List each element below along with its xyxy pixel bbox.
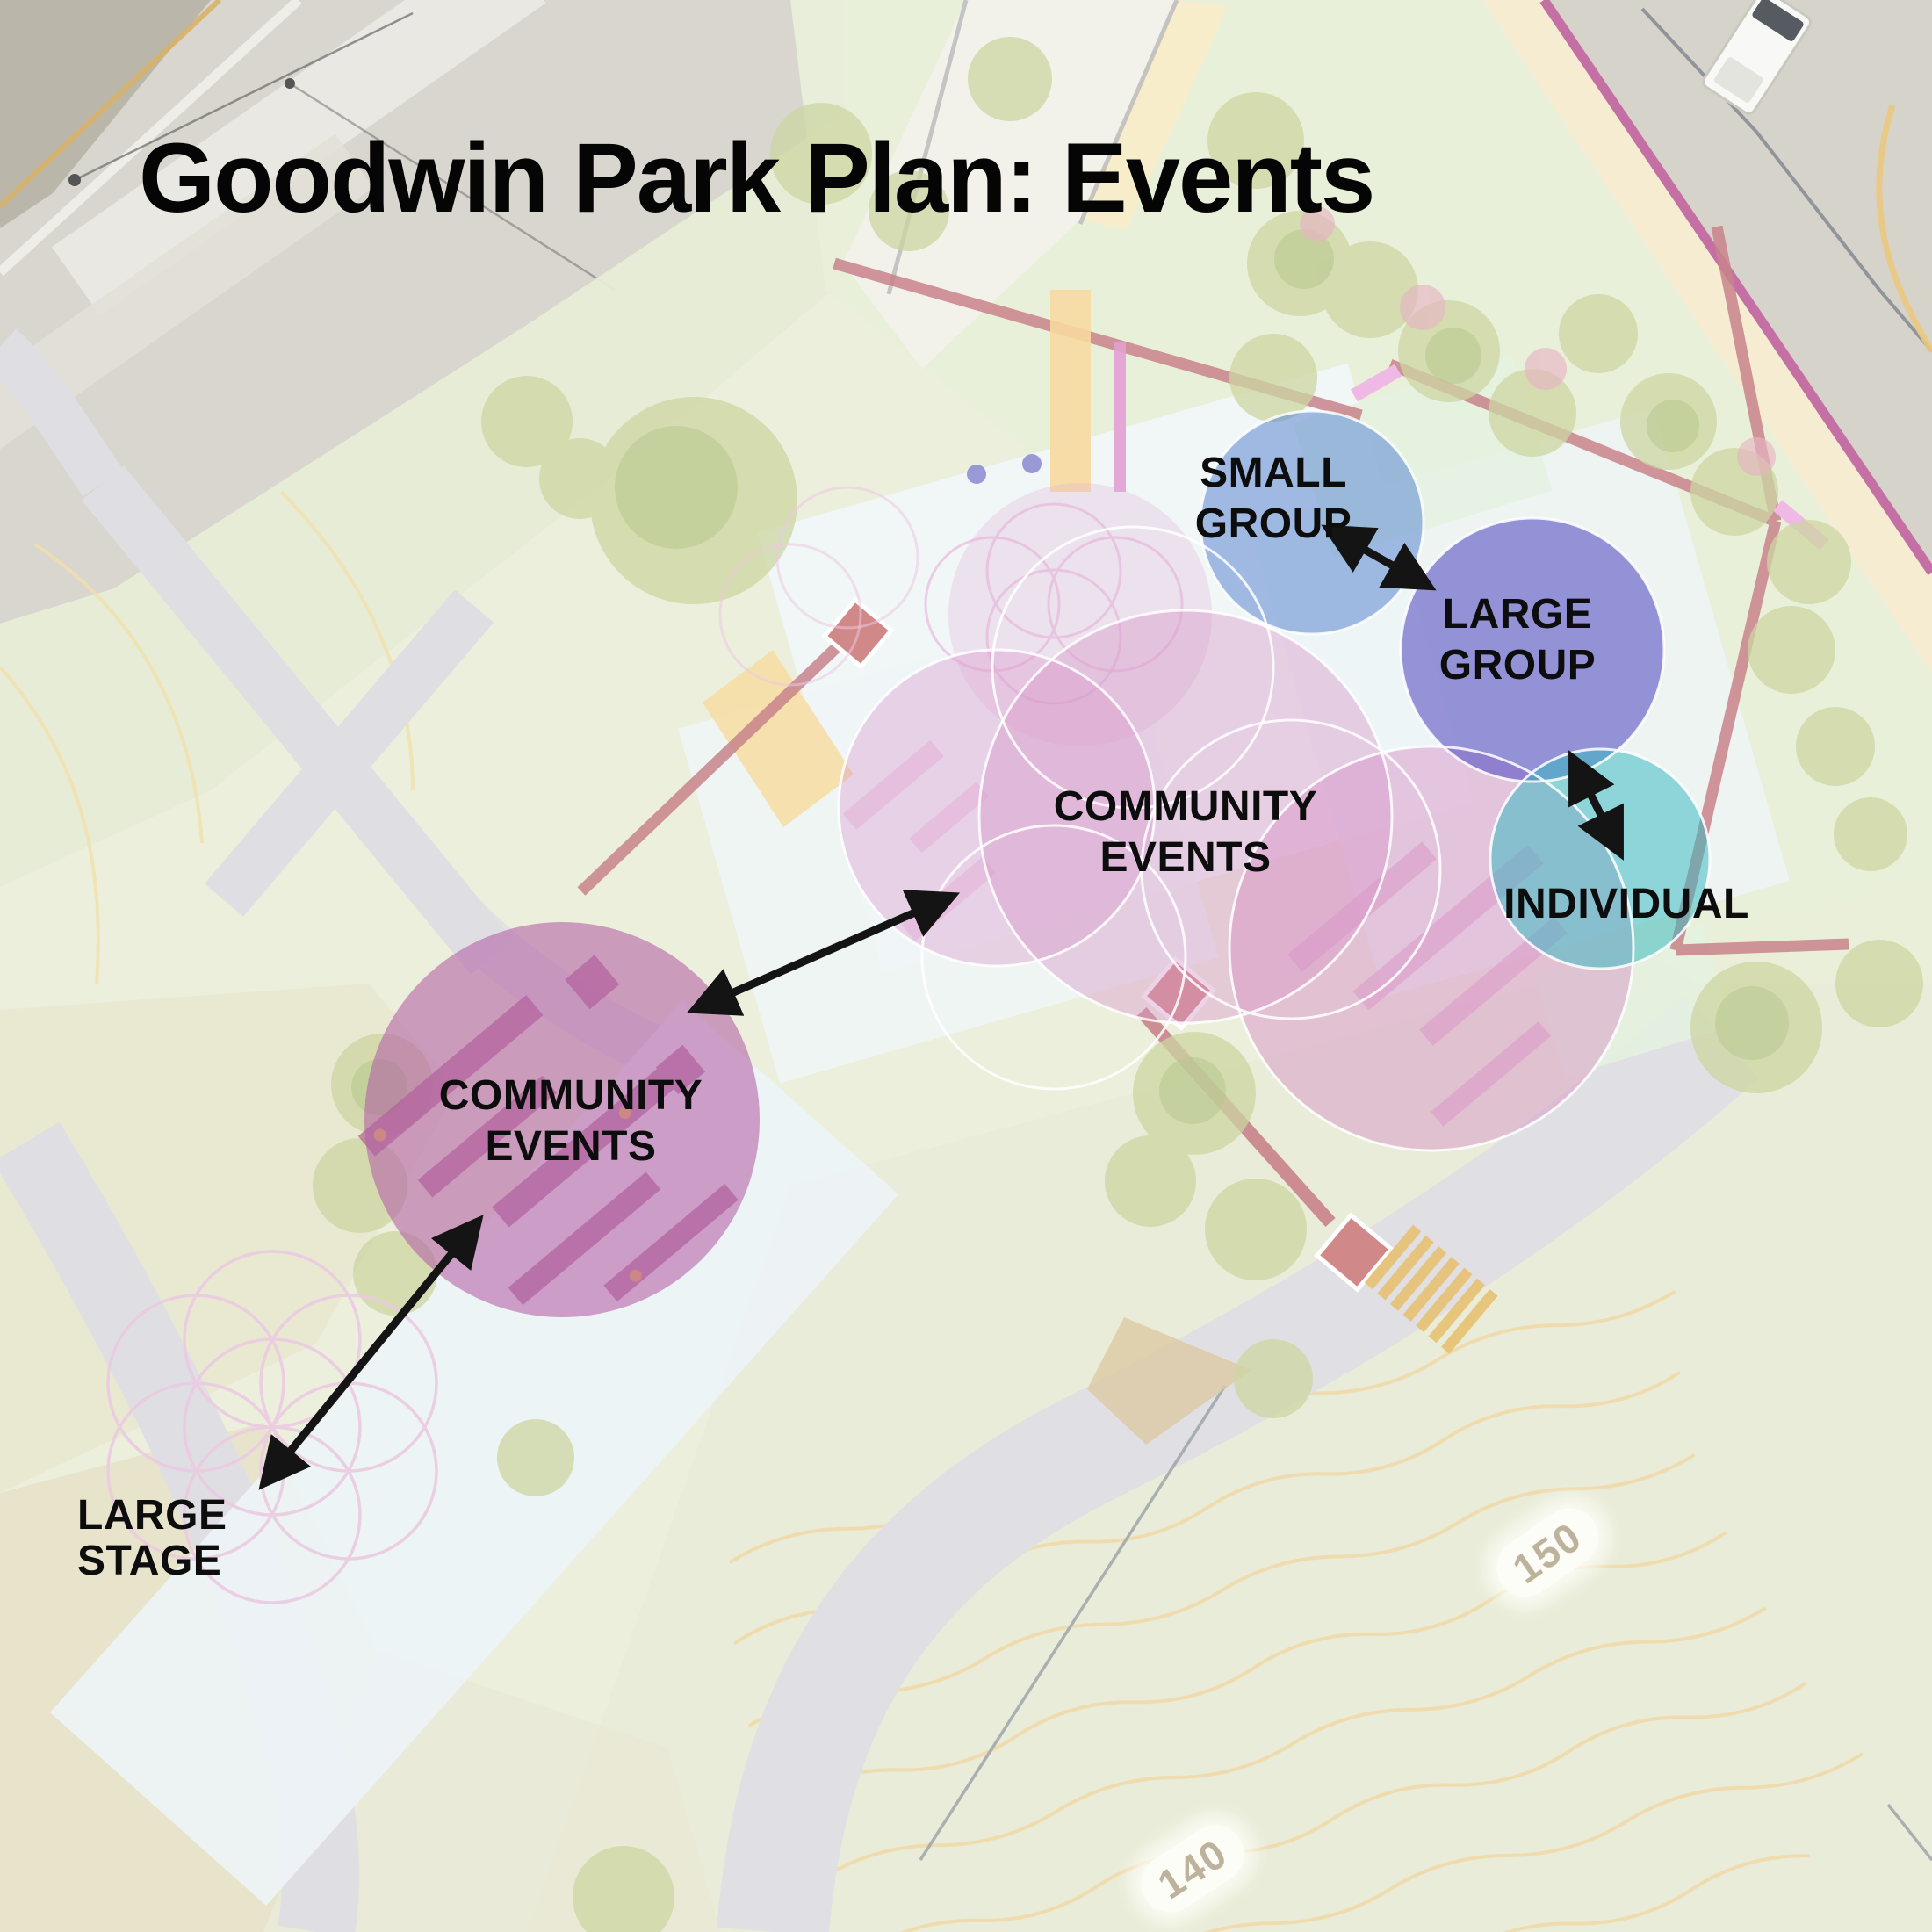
park-plan-page: Goodwin Park Plan: Events SMALL GROUP LA… [0, 0, 1932, 1932]
community-events-plaza-label: COMMUNITY EVENTS [1054, 782, 1317, 883]
large-stage-label: LARGE STAGE [77, 1493, 227, 1584]
park-plan-map [0, 0, 1932, 1932]
community-events-lawn-label: COMMUNITY EVENTS [439, 1071, 703, 1172]
large-group-label: LARGE GROUP [1439, 589, 1597, 691]
individual-label: INDIVIDUAL [1503, 879, 1749, 930]
small-group-label: SMALL GROUP [1195, 448, 1352, 550]
page-title: Goodwin Park Plan: Events [139, 121, 1373, 234]
utility-pole [68, 174, 81, 186]
utility-pole [285, 78, 295, 89]
